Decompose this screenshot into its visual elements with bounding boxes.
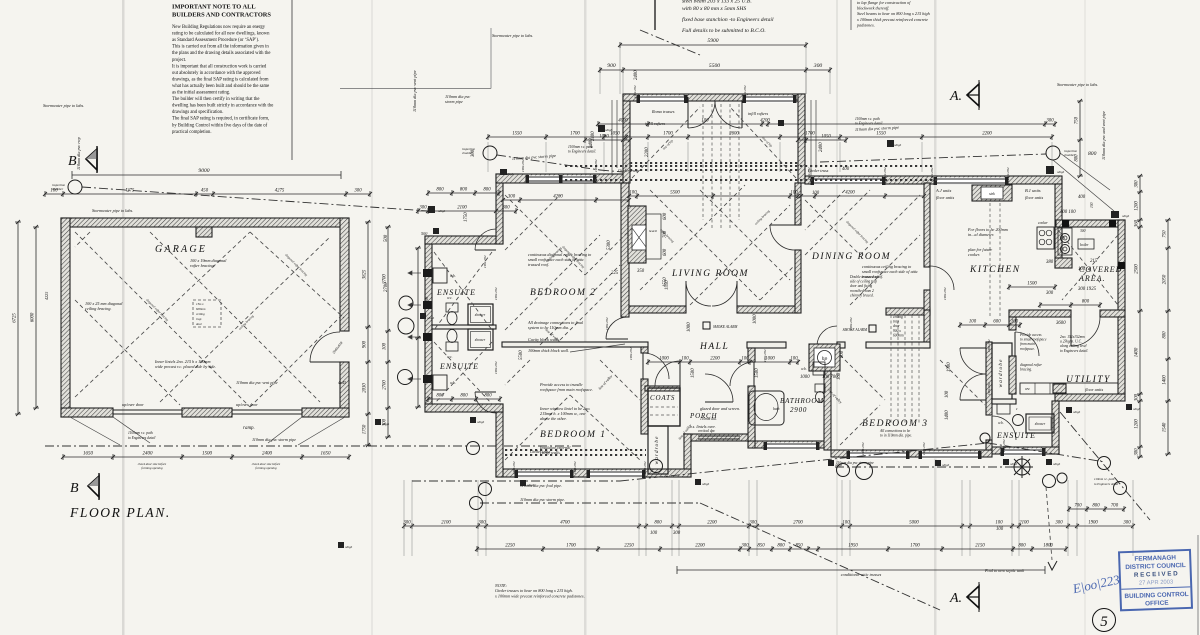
svg-text:1500: 1500: [755, 368, 760, 378]
svg-text:1981x762: 1981x762: [743, 85, 747, 98]
svg-text:4275: 4275: [275, 189, 285, 194]
svg-text:1981x762: 1981x762: [987, 339, 991, 352]
svg-text:uhigh: uhigh: [506, 172, 514, 176]
svg-text:800: 800: [1092, 504, 1100, 509]
svg-text:2100: 2100: [1019, 521, 1029, 526]
svg-text:300: 300: [1123, 521, 1131, 526]
svg-text:steel beam 203 x 133 x 25 U.B.: steel beam 203 x 133 x 25 U.B.: [682, 0, 752, 5]
svg-text:900: 900: [607, 63, 616, 69]
svg-text:110mm dia.: 110mm dia.: [700, 417, 717, 421]
svg-text:3600: 3600: [1056, 321, 1066, 326]
svg-text:4x45: 4x45: [338, 380, 346, 385]
svg-text:100: 100: [383, 342, 388, 350]
svg-text:1700: 1700: [805, 132, 815, 137]
svg-text:300 100: 300 100: [1060, 210, 1076, 215]
svg-text:2200: 2200: [982, 132, 992, 137]
svg-text:floor units: floor units: [1085, 387, 1103, 392]
svg-text:2200: 2200: [695, 544, 705, 549]
svg-text:1750: 1750: [464, 212, 469, 222]
svg-text:uhigh: uhigh: [1133, 407, 1141, 411]
svg-text:1000: 1000: [687, 322, 692, 332]
svg-text:forming opening: forming opening: [141, 466, 163, 470]
svg-text:100: 100: [1078, 267, 1086, 272]
svg-text:100: 100: [945, 390, 950, 398]
svg-text:1981x762: 1981x762: [930, 167, 934, 180]
svg-text:1981x762: 1981x762: [883, 167, 887, 180]
svg-text:600: 600: [663, 212, 668, 220]
svg-text:2030: 2030: [363, 383, 368, 393]
svg-text:1981x762: 1981x762: [763, 349, 767, 362]
svg-text:1981x762: 1981x762: [483, 255, 487, 268]
svg-text:100mm thick block wall.: 100mm thick block wall.: [528, 348, 569, 353]
svg-text:5500: 5500: [709, 63, 720, 69]
svg-text:uhigh: uhigh: [427, 316, 435, 320]
svg-text:2700: 2700: [384, 282, 389, 292]
svg-text:w.b.: w.b.: [998, 421, 1004, 425]
svg-text:B: B: [70, 481, 79, 496]
svg-text:hearth: hearth: [649, 229, 658, 233]
svg-text:uhigh: uhigh: [477, 420, 485, 424]
svg-text:100: 100: [996, 527, 1004, 532]
svg-text:110mm dia pvc storm pipe.: 110mm dia pvc storm pipe.: [520, 497, 565, 502]
svg-text:2100: 2100: [457, 206, 467, 211]
svg-text:1500: 1500: [691, 368, 696, 378]
svg-text:SMOKE ALARM: SMOKE ALARM: [713, 325, 738, 329]
svg-text:1650: 1650: [83, 452, 94, 457]
svg-text:4200: 4200: [553, 195, 563, 200]
svg-text:600: 600: [993, 320, 1001, 325]
svg-text:300: 300: [741, 544, 749, 549]
svg-text:850: 850: [757, 544, 765, 549]
svg-text:2100: 2100: [441, 521, 451, 526]
svg-text:boiler: boiler: [1080, 243, 1089, 247]
svg-text:300: 300: [1055, 521, 1063, 526]
svg-text:FERMANAGH: FERMANAGH: [1134, 554, 1176, 562]
svg-text:BEDROOM 3: BEDROOM 3: [862, 419, 929, 429]
svg-text:300: 300: [1135, 448, 1140, 456]
svg-text:2400: 2400: [591, 131, 596, 141]
svg-text:27 APR 2003: 27 APR 2003: [1139, 579, 1173, 586]
svg-text:2250: 2250: [505, 544, 515, 549]
svg-text:1950: 1950: [848, 544, 858, 549]
svg-text:100: 100: [812, 191, 820, 196]
svg-text:800: 800: [483, 188, 491, 193]
svg-text:1400: 1400: [1135, 347, 1140, 357]
svg-text:wardrobe: wardrobe: [998, 359, 1004, 388]
svg-text:uhigh: uhigh: [1057, 170, 1065, 174]
svg-text:1981x762: 1981x762: [629, 347, 633, 360]
svg-text:800: 800: [654, 521, 662, 526]
svg-text:100: 100: [842, 521, 850, 526]
svg-text:160: 160: [837, 372, 842, 380]
svg-text:100: 100: [995, 521, 1003, 526]
svg-text:800: 800: [1075, 154, 1080, 162]
svg-text:floor units: floor units: [936, 195, 954, 200]
svg-text:100: 100: [969, 320, 977, 325]
svg-text:900: 900: [363, 340, 368, 348]
svg-text:All connections to beto in 110: All connections to beto in 110mm dia. pi…: [879, 429, 912, 438]
svg-text:5000: 5000: [909, 521, 919, 526]
svg-text:2400: 2400: [143, 452, 154, 457]
svg-text:1981x762: 1981x762: [1002, 439, 1006, 452]
svg-text:100: 100: [681, 357, 689, 362]
svg-text:ENSUITE: ENSUITE: [996, 431, 1036, 440]
svg-text:1500: 1500: [1027, 282, 1037, 287]
svg-text:BEDROOM 1: BEDROOM 1: [540, 430, 607, 440]
svg-text:5300: 5300: [607, 240, 612, 250]
svg-text:300: 300: [403, 521, 411, 526]
svg-text:infill rafters: infill rafters: [748, 111, 768, 116]
svg-text:700: 700: [1111, 504, 1119, 509]
svg-text:2400: 2400: [634, 70, 639, 80]
svg-text:2250: 2250: [624, 544, 634, 549]
svg-text:1981x762: 1981x762: [922, 442, 926, 455]
svg-text:300: 300: [1135, 393, 1140, 401]
svg-text:800: 800: [484, 394, 492, 399]
svg-text:4225: 4225: [44, 292, 49, 300]
svg-text:LIVING ROOM: LIVING ROOM: [671, 269, 749, 279]
svg-text:500: 500: [384, 234, 389, 242]
svg-text:800: 800: [460, 394, 468, 399]
svg-text:sink: sink: [989, 192, 995, 196]
svg-text:2700: 2700: [383, 380, 388, 390]
svg-text:1900: 1900: [1088, 521, 1098, 526]
svg-text:2900: 2900: [790, 406, 807, 414]
svg-text:225: 225: [611, 271, 619, 276]
svg-text:5900: 5900: [707, 38, 718, 44]
svg-text:4000: 4000: [618, 119, 628, 124]
svg-text:100: 100: [741, 357, 749, 362]
svg-text:Stormwater pipe to labs.: Stormwater pipe to labs.: [43, 103, 84, 108]
svg-text:300: 300: [749, 521, 757, 526]
svg-text:vertical dpc: vertical dpc: [698, 429, 715, 433]
svg-text:1700: 1700: [663, 132, 673, 137]
svg-text:1981x762: 1981x762: [633, 85, 637, 98]
svg-text:1550: 1550: [876, 132, 886, 137]
svg-text:uhigh: uhigh: [605, 128, 613, 132]
svg-text:BEDROOM 2: BEDROOM 2: [530, 288, 597, 298]
svg-text:3825: 3825: [363, 269, 368, 279]
svg-text:bath: bath: [773, 407, 780, 411]
svg-text:110mm dia pvc and vent pipe: 110mm dia pvc and vent pipe: [1101, 111, 1106, 160]
svg-text:floor units: floor units: [1025, 195, 1043, 200]
svg-text:1981x762: 1981x762: [861, 442, 865, 455]
svg-text:110mm r.c. path: 110mm r.c. path: [1094, 477, 1115, 481]
svg-text:400: 400: [1078, 195, 1086, 200]
svg-text:350: 350: [637, 269, 645, 274]
svg-text:uhigh: uhigh: [527, 483, 535, 487]
svg-text:forming opening: forming opening: [255, 466, 277, 470]
svg-text:ramp.: ramp.: [243, 426, 255, 431]
svg-text:2no. 152x152mma 23kg/m. U.C.al: 2no. 152x152mma 23kg/m. U.C.along ceilin…: [1060, 335, 1088, 353]
svg-text:1981x762: 1981x762: [594, 159, 598, 172]
svg-text:up/over door: up/over door: [236, 402, 258, 407]
svg-text:2200: 2200: [707, 521, 717, 526]
svg-text:A.: A.: [949, 89, 962, 104]
svg-text:1700: 1700: [566, 544, 576, 549]
svg-text:Foul to new septic tank: Foul to new septic tank: [984, 568, 1024, 573]
svg-text:300: 300: [1080, 229, 1086, 233]
svg-text:1981x762: 1981x762: [521, 159, 525, 172]
svg-text:5500: 5500: [670, 191, 680, 196]
svg-text:300 1925: 300 1925: [1078, 287, 1097, 292]
svg-text:100 700: 100 700: [822, 375, 838, 380]
svg-text:ww: ww: [1025, 387, 1030, 391]
svg-text:GARAGE: GARAGE: [155, 244, 207, 255]
svg-text:1981x762: 1981x762: [987, 382, 991, 395]
svg-text:800: 800: [1088, 151, 1097, 157]
svg-text:300: 300: [478, 521, 486, 526]
svg-text:2200: 2200: [645, 147, 650, 157]
svg-text:2050: 2050: [1163, 274, 1168, 284]
svg-text:Stormwater pipe to labs.: Stormwater pipe to labs.: [1057, 82, 1098, 87]
svg-text:600: 600: [663, 248, 668, 256]
svg-text:cooker: cooker: [1038, 221, 1048, 225]
svg-text:shower: shower: [475, 338, 486, 342]
svg-text:4700: 4700: [560, 521, 570, 526]
svg-text:ENSUITE: ENSUITE: [439, 362, 479, 371]
svg-text:1981x762: 1981x762: [494, 287, 498, 300]
svg-text:1981x762: 1981x762: [512, 461, 516, 474]
svg-text:uhigh: uhigh: [1122, 214, 1130, 218]
svg-text:uhigh: uhigh: [942, 463, 950, 467]
svg-text:9000: 9000: [198, 168, 209, 174]
svg-text:2600: 2600: [729, 132, 739, 137]
svg-text:4200: 4200: [760, 119, 770, 124]
svg-text:uhigh: uhigh: [1053, 462, 1061, 466]
svg-text:1800: 1800: [1043, 544, 1053, 549]
svg-text:2200: 2200: [710, 357, 720, 362]
svg-text:uhigh: uhigh: [894, 143, 902, 147]
svg-text:800: 800: [1082, 300, 1090, 305]
svg-text:HALL: HALL: [699, 342, 729, 352]
svg-text:800: 800: [1163, 331, 1168, 339]
svg-text:4200: 4200: [845, 191, 855, 196]
svg-text:1540: 1540: [1163, 422, 1168, 432]
svg-text:6725: 6725: [13, 313, 18, 323]
svg-text:100: 100: [1090, 202, 1094, 208]
svg-text:100: 100: [424, 296, 429, 303]
svg-text:1981x762: 1981x762: [807, 167, 811, 180]
svg-text:chamber: chamber: [462, 151, 474, 155]
svg-text:SMOKE ALARM: SMOKE ALARM: [843, 328, 868, 332]
svg-text:800: 800: [460, 188, 468, 193]
svg-text:1100mm r.c. path: 1100mm r.c. path: [128, 431, 153, 435]
svg-text:450: 450: [201, 189, 209, 194]
svg-text:1700: 1700: [570, 132, 580, 137]
svg-text:1000: 1000: [659, 357, 669, 362]
svg-text:1981x762: 1981x762: [943, 287, 947, 300]
svg-text:215: 215: [1090, 259, 1098, 264]
svg-text:1981x762: 1981x762: [1006, 167, 1010, 180]
svg-text:300: 300: [1046, 119, 1054, 124]
svg-text:chamber: chamber: [52, 187, 64, 191]
svg-text:1981x762: 1981x762: [573, 461, 577, 474]
svg-text:2500: 2500: [1135, 264, 1140, 274]
svg-text:1400: 1400: [1163, 375, 1168, 385]
svg-text:1200: 1200: [1135, 201, 1140, 211]
svg-text:glazed door and screen.: glazed door and screen.: [700, 406, 740, 411]
svg-text:FLOOR PLAN.: FLOOR PLAN.: [69, 505, 171, 520]
svg-text:100: 100: [701, 119, 709, 124]
svg-text:KITCHEN: KITCHEN: [969, 265, 1021, 275]
svg-text:5500: 5500: [519, 350, 524, 360]
svg-text:w.b.: w.b.: [801, 367, 807, 371]
svg-text:uhigh: uhigh: [1073, 410, 1081, 414]
svg-text:1400: 1400: [945, 410, 950, 420]
svg-text:100: 100: [629, 191, 637, 196]
svg-text:750: 750: [1163, 230, 1168, 238]
svg-text:6000: 6000: [31, 312, 36, 322]
svg-text:shower: shower: [1035, 422, 1046, 426]
svg-text:1550: 1550: [663, 277, 668, 287]
svg-text:chamber: chamber: [1064, 153, 1076, 157]
svg-text:COATS: COATS: [650, 394, 675, 402]
svg-text:uhigh: uhigh: [345, 545, 353, 549]
svg-text:DINING ROOM: DINING ROOM: [811, 252, 891, 262]
svg-text:1000: 1000: [753, 314, 758, 324]
svg-text:100: 100: [650, 531, 658, 536]
svg-text:360: 360: [1135, 219, 1140, 227]
svg-text:750: 750: [1075, 116, 1080, 124]
svg-text:300: 300: [813, 63, 823, 69]
svg-text:2700: 2700: [383, 274, 388, 284]
svg-text:uhigh: uhigh: [835, 463, 843, 467]
svg-text:300: 300: [502, 206, 510, 211]
svg-text:5: 5: [1100, 614, 1108, 630]
svg-text:100: 100: [790, 191, 798, 196]
svg-text:300: 300: [1046, 291, 1054, 296]
svg-text:300: 300: [1135, 180, 1140, 188]
svg-text:New Building Regulations now r: New Building Regulations now require an …: [172, 25, 273, 135]
svg-text:A.J units: A.J units: [935, 188, 952, 193]
svg-text:700: 700: [1074, 504, 1082, 509]
svg-text:1200: 1200: [1135, 419, 1140, 429]
svg-text:1500: 1500: [202, 452, 213, 457]
svg-text:800: 800: [1018, 544, 1026, 549]
svg-text:1650: 1650: [321, 452, 332, 457]
svg-text:110mm dia pvc storm pipe: 110mm dia pvc storm pipe: [252, 437, 296, 442]
svg-text:300: 300: [673, 531, 681, 536]
svg-text:hp: hp: [822, 356, 828, 362]
svg-text:UTILITY: UTILITY: [1066, 375, 1111, 385]
svg-text:300: 300: [508, 195, 516, 200]
svg-text:up/over door: up/over door: [122, 402, 144, 407]
svg-text:400: 400: [842, 167, 850, 172]
svg-text:800: 800: [840, 350, 845, 358]
svg-text:110mm dia pvc rwp: 110mm dia pvc rwp: [76, 137, 81, 170]
svg-text:uhigh: uhigh: [382, 422, 390, 426]
svg-text:B: B: [68, 154, 77, 169]
svg-text:2700: 2700: [793, 521, 803, 526]
svg-text:1900: 1900: [947, 362, 952, 372]
svg-text:300: 300: [354, 189, 362, 194]
svg-text:500: 500: [421, 231, 428, 236]
svg-text:uhigh: uhigh: [438, 209, 446, 213]
svg-text:ENSUITE: ENSUITE: [436, 288, 476, 297]
svg-text:2400: 2400: [819, 142, 824, 152]
svg-text:A.: A.: [949, 591, 962, 606]
svg-text:Stormwater pipe to labs.: Stormwater pipe to labs.: [492, 33, 533, 38]
svg-text:1981x762: 1981x762: [494, 361, 498, 374]
svg-text:1981x762: 1981x762: [849, 317, 853, 330]
svg-text:1050: 1050: [610, 132, 620, 137]
svg-text:1981x762: 1981x762: [605, 317, 609, 330]
svg-text:1000: 1000: [800, 375, 810, 380]
svg-text:800: 800: [777, 544, 785, 549]
svg-text:1700: 1700: [910, 544, 920, 549]
svg-text:Roma trusses: Roma trusses: [651, 109, 675, 114]
svg-text:Inner lintels 2no. 215 h x 100: Inner lintels 2no. 215 h x 100mmwide pre…: [154, 359, 216, 369]
svg-text:110mm dia pvc vent pipe: 110mm dia pvc vent pipe: [412, 70, 417, 112]
svg-text:380: 380: [1046, 260, 1054, 265]
svg-text:2400: 2400: [262, 452, 273, 457]
svg-text:Stormwater pipe to labs.: Stormwater pipe to labs.: [92, 208, 133, 213]
svg-text:2150: 2150: [975, 544, 985, 549]
svg-text:100: 100: [790, 357, 798, 362]
svg-text:to Engineers detail: to Engineers detail: [128, 436, 155, 440]
svg-text:110mm dia pvc vent pipe: 110mm dia pvc vent pipe: [236, 380, 278, 385]
svg-text:uhigh: uhigh: [1010, 462, 1018, 466]
svg-text:B.1 units: B.1 units: [1025, 188, 1041, 193]
svg-text:300: 300: [419, 206, 427, 211]
svg-text:800: 800: [436, 188, 444, 193]
svg-text:100: 100: [1011, 320, 1019, 325]
svg-text:1750: 1750: [363, 424, 368, 434]
svg-text:1550: 1550: [512, 132, 522, 137]
svg-text:BATHROOM: BATHROOM: [780, 397, 824, 405]
svg-text:OFFICE: OFFICE: [1145, 600, 1169, 608]
svg-text:1981x762: 1981x762: [643, 461, 647, 474]
svg-text:uhigh: uhigh: [702, 482, 710, 486]
